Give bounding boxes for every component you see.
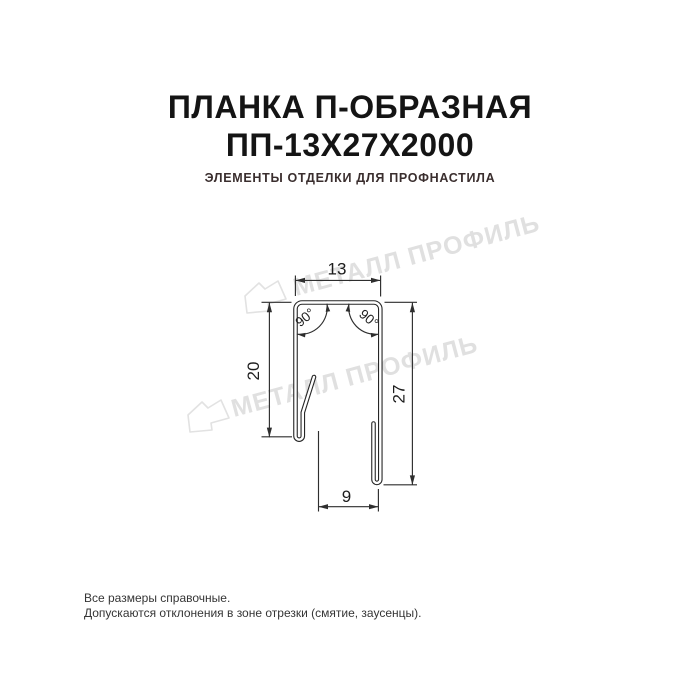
footer-notes: Все размеры справочные. Допускаются откл… xyxy=(84,591,421,620)
dimension-value-left: 20 xyxy=(244,362,263,381)
metall-profil-logo-icon xyxy=(245,281,286,313)
watermark-text-upper: МЕТАЛЛ ПРОФИЛЬ xyxy=(290,209,543,302)
arrowhead xyxy=(346,304,351,312)
dimension-value-top: 13 xyxy=(328,260,347,279)
arrowhead xyxy=(326,304,331,312)
watermark-text-middle: МЕТАЛЛ ПРОФИЛЬ xyxy=(228,330,481,423)
dimension-value-bottom: 9 xyxy=(342,487,351,506)
extension-line xyxy=(262,302,293,437)
arrowhead xyxy=(369,504,378,509)
arrowhead xyxy=(297,333,306,338)
angle-annotations: 90° 90° xyxy=(292,304,381,338)
dimension-bottom-width: 9 xyxy=(319,431,379,512)
metall-profil-logo-icon xyxy=(188,400,229,432)
footer-note-line2: Допускаются отклонения в зоне отрезки (с… xyxy=(84,606,421,621)
arrowhead xyxy=(371,333,379,338)
footer-note-line1: Все размеры справочные. xyxy=(84,591,421,606)
dimension-value-right: 27 xyxy=(390,385,409,404)
arrowhead xyxy=(267,428,272,438)
product-drawing-page: ПЛАНКА П-ОБРАЗНАЯ ПП-13Х27Х2000 ЭЛЕМЕНТЫ… xyxy=(0,0,700,700)
dimension-right-height: 27 xyxy=(384,302,418,485)
arrowhead xyxy=(410,303,415,313)
arrowhead xyxy=(410,475,415,485)
arrowhead xyxy=(319,504,329,509)
angle-label-right: 90° xyxy=(356,306,381,331)
